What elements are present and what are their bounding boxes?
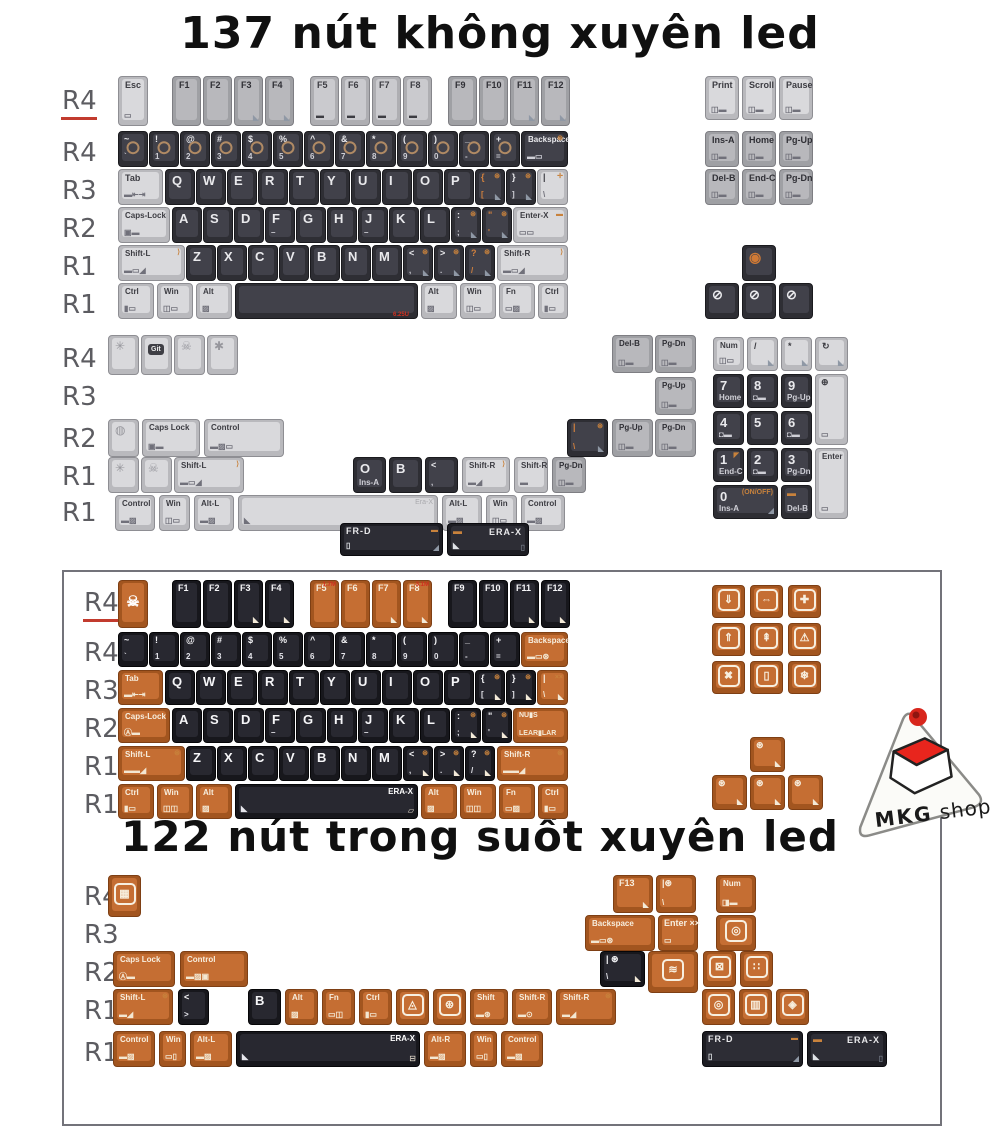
keycap-6: 6◘▬	[781, 411, 812, 445]
keycap-icon: 6.25U	[235, 283, 418, 319]
row-label: R1	[62, 252, 97, 282]
key-legend: >	[440, 249, 445, 258]
row-label: R4	[84, 588, 119, 618]
keycap-z: Z	[186, 245, 216, 281]
keycap-o: O	[413, 169, 443, 205]
keycap-glyph: ~`	[118, 632, 148, 667]
row-label: R4	[62, 138, 97, 168]
keycap-control: Control▬▨	[113, 1031, 155, 1067]
row-label: R4	[62, 344, 97, 374]
key-legend: }	[512, 173, 516, 182]
key-legend: O	[420, 174, 430, 187]
key-legend: Alt	[203, 288, 214, 296]
keycap-fn: Fn▭▨	[499, 784, 535, 819]
key-legend: Control	[120, 1036, 148, 1044]
key-legend: T	[296, 675, 304, 688]
key-legend: Esc	[125, 81, 141, 90]
key-legend: ◣	[813, 798, 819, 806]
key-legend: ◫▬	[618, 443, 634, 451]
key-legend: ?	[471, 249, 477, 258]
keycap-9: 9Pg-Up	[781, 374, 812, 408]
key-legend: ××	[555, 674, 563, 681]
key-legend: R	[265, 675, 274, 688]
key-legend: >	[440, 750, 445, 759]
key-legend: Caps-Lock	[125, 212, 166, 220]
key-legend: ◣	[454, 269, 460, 277]
keycap-fr-d: FR-D▯▬◢	[702, 1031, 803, 1067]
key-legend: ERA-X	[390, 1035, 415, 1043]
key-legend: ◣	[598, 445, 604, 453]
key-legend: Win	[493, 500, 508, 508]
keycap-f4: F4◣	[265, 580, 294, 628]
keycap-l: L	[420, 708, 450, 743]
key-legend: ◍	[115, 424, 125, 436]
red-size-mark: 1.7M	[323, 582, 336, 588]
key-legend: +	[496, 135, 501, 144]
key-legend: X	[224, 250, 233, 263]
keycap-u: U	[351, 670, 381, 705]
keycap-shift-r: Shift-R▬◢⟩	[462, 457, 510, 493]
key-legend: ◣	[485, 269, 491, 277]
key-legend: ▨	[427, 805, 435, 813]
key-legend: ▬▭◢	[503, 267, 525, 275]
key-legend: ▮▭	[124, 805, 136, 813]
key-legend: Ins-A	[712, 136, 735, 145]
keycap-glyph: ☠	[141, 457, 172, 493]
key-legend: ⟩	[560, 249, 563, 256]
keycap-e: E	[227, 169, 257, 205]
keycap-glyph: *◣	[781, 337, 812, 371]
key-legend: ▬▨	[121, 517, 137, 525]
key-legend: Shift-R	[521, 462, 547, 470]
keycap-a: A	[172, 708, 202, 743]
keycap-h: H	[327, 708, 357, 743]
key-legend: |	[543, 173, 546, 182]
keycap-backspace: Backspace▬▭⊛	[521, 632, 568, 667]
keycap-shift-r: Shift-R▬	[514, 457, 548, 493]
key-legend: Alt	[428, 288, 439, 296]
key-legend: 0	[434, 153, 438, 161]
key-legend: FR-D	[346, 527, 372, 536]
keycap-shift-l: Shift-L▬▭◢⟩	[118, 245, 185, 281]
key-legend: F7	[378, 584, 389, 593]
keycap-glyph: | ⊛\◣	[600, 951, 645, 987]
key-legend: F9	[454, 584, 465, 593]
key-legend: \	[573, 443, 575, 451]
key-legend: .	[440, 767, 442, 775]
key-legend: }	[512, 674, 516, 683]
keycap-glyph: ?/⊛◣	[465, 245, 495, 281]
key-legend: ◣	[643, 901, 649, 909]
keycap-glyph: ⇑	[712, 623, 745, 656]
keycap-win: Win▭▯	[470, 1031, 497, 1067]
key-legend: Q	[172, 174, 182, 187]
key-legend: <	[409, 249, 414, 258]
title-led-set: 122 nút trong suốt xuyên led	[40, 812, 920, 861]
key-legend: L	[427, 713, 435, 726]
key-legend: ^	[310, 636, 315, 645]
key-legend: |⊛	[662, 879, 672, 888]
key-legend: 2	[186, 153, 190, 161]
key-legend: H	[334, 212, 343, 225]
key-legend: ⊛	[484, 249, 490, 256]
key-legend: 9	[403, 653, 407, 661]
key-legend: ▦	[114, 883, 136, 905]
key-legend: 7	[720, 379, 727, 392]
key-legend: !	[155, 135, 158, 144]
key-legend: @	[186, 135, 195, 144]
key-legend: %	[279, 636, 287, 645]
key-legend: ◣	[775, 798, 781, 806]
key-legend: ◣	[485, 769, 491, 777]
keycap-glyph: ⊘	[742, 283, 776, 319]
key-legend: Caps-Lock	[125, 713, 166, 721]
key-legend: Backspace	[528, 136, 570, 144]
keycap-q: Q	[165, 670, 195, 705]
key-legend: |	[573, 423, 576, 432]
key-legend: #	[217, 636, 222, 645]
key-legend: 6	[310, 653, 314, 661]
keycap-alt: Alt▨	[421, 283, 457, 319]
key-legend: ⊛	[422, 750, 428, 757]
key-legend: ⊛	[453, 750, 459, 757]
key-legend: X	[224, 751, 233, 764]
key-legend: {	[481, 173, 485, 182]
keycap-f3: F3◣	[234, 580, 263, 628]
key-legend: Control	[122, 500, 150, 508]
key-legend: Tab	[125, 174, 140, 183]
keycap-alt-r: Alt-R▬▨	[424, 1031, 466, 1067]
keycap-f1: F1	[172, 580, 201, 628]
key-legend: Home	[749, 136, 774, 145]
key-legend: Win	[164, 288, 179, 296]
key-legend: ▬	[787, 489, 796, 498]
key-legend: V	[286, 250, 295, 263]
key-legend: ⊛	[470, 712, 476, 719]
keycap-glyph: >.⊛◣	[434, 245, 464, 281]
row-label: R1	[84, 790, 119, 820]
key-legend: I	[389, 174, 393, 187]
key-legend: F2	[209, 584, 220, 593]
key-legend: ▬▭	[527, 153, 543, 161]
key-legend: O	[360, 462, 370, 475]
key-legend: Control	[211, 424, 239, 432]
keycap-i: I	[382, 169, 412, 205]
key-legend: ▬	[347, 112, 355, 120]
row-label: R4	[62, 86, 97, 116]
key-legend: ◣	[253, 616, 259, 624]
key-legend: ▬▨▣	[186, 973, 209, 981]
key-legend: E	[234, 174, 243, 187]
key-legend: 6	[788, 416, 795, 429]
key-legend: –	[364, 229, 368, 237]
key-legend: Alt	[203, 789, 214, 797]
key-legend: |	[543, 674, 546, 683]
key-legend: *	[372, 135, 376, 144]
key-legend: Y	[327, 174, 336, 187]
keycap-shift-r: Shift-R▬⊙	[512, 989, 552, 1025]
keycap-glyph: ▬Del-B	[781, 485, 812, 519]
keycap-nu-s: NU▮SLEAR▮LAR	[513, 708, 568, 743]
key-legend: ◣	[802, 359, 808, 367]
key-legend: ▭▯	[476, 1053, 488, 1061]
keycap-a: A	[172, 207, 202, 243]
keycap-glyph: ∷	[740, 951, 773, 987]
key-legend: Pg-Dn	[662, 424, 686, 432]
keycap-glyph: +=	[490, 131, 520, 167]
key-legend: B	[396, 462, 405, 475]
keycap-glyph: "'⊛◣	[482, 207, 512, 243]
key-legend: D	[241, 713, 250, 726]
key-legend: Ctrl	[545, 789, 559, 797]
key-legend: P	[451, 675, 460, 688]
key-legend: F1	[178, 584, 189, 593]
keycap-glyph: ◣ERA-X⊟	[236, 1031, 420, 1067]
key-legend: 1	[155, 653, 159, 661]
key-legend: @	[186, 636, 195, 645]
keycap-f8: F8◣3.1M	[403, 580, 432, 628]
key-legend: Fn	[329, 994, 339, 1002]
key-legend: 0	[720, 490, 727, 503]
key-legend: ▬⊛	[476, 1011, 491, 1019]
keycap-glyph: ⊘	[705, 283, 739, 319]
row-label: R1	[84, 752, 119, 782]
key-legend: ▯	[521, 544, 525, 552]
keycap-fn: Fn▭◫	[322, 989, 355, 1025]
key-legend: ▮▭	[544, 305, 556, 313]
keycap-control: Control▬▨▭	[204, 419, 284, 457]
key-legend: ▬▨	[527, 517, 543, 525]
key-legend: \	[662, 899, 664, 907]
key-legend: ◣	[813, 1053, 819, 1061]
keycap-f: F–	[265, 207, 295, 243]
key-legend: 2	[754, 453, 761, 466]
keycap-x: X	[217, 245, 247, 281]
key-legend: `	[124, 653, 127, 661]
key-legend: ◣	[242, 1053, 248, 1061]
key-legend: ⇞	[756, 627, 778, 649]
key-legend: J	[365, 212, 372, 225]
key-legend: S	[210, 713, 219, 726]
key-legend: &	[341, 135, 348, 144]
key-legend: 0	[434, 653, 438, 661]
keycap-j: J–	[358, 207, 388, 243]
key-legend: Pg-Up	[662, 382, 686, 390]
keycap-1: 1End-C◤	[713, 448, 744, 482]
keycap-s: S	[203, 207, 233, 243]
key-legend: S	[210, 212, 219, 225]
keycap-j: J–	[358, 708, 388, 743]
key-legend: Caps Lock	[149, 424, 189, 432]
keycap-shift-r: Shift-R▬▭◢⟩	[497, 245, 568, 281]
key-legend: ◫▬	[785, 191, 801, 199]
key-legend: ▬	[431, 527, 438, 534]
key-legend: ▬	[813, 1035, 823, 1044]
key-legend: Alt-L	[449, 500, 467, 508]
key-legend: ⊛	[597, 423, 603, 430]
keycap-f4: F4◣	[265, 76, 294, 126]
key-legend: =	[496, 153, 501, 161]
keycap-shift-r: Shift-R▬▬◢⊛	[497, 746, 568, 781]
key-legend: End-C	[719, 468, 743, 476]
key-legend: ◣	[502, 731, 508, 739]
keycap-fr-d: FR-D▯▬◢	[340, 523, 443, 556]
keycap-glyph: ⊘	[779, 283, 813, 319]
key-legend: \	[606, 973, 608, 981]
key-legend: ◘▬	[787, 431, 800, 439]
key-legend: Shift-R	[469, 462, 495, 470]
row-label: R2	[62, 424, 97, 454]
key-legend: M	[379, 751, 390, 764]
key-legend: Control	[508, 1036, 536, 1044]
key-legend: ◣	[241, 805, 247, 813]
keycap-w: W	[196, 169, 226, 205]
key-legend: Shift-R	[519, 994, 545, 1002]
keycap-glyph: <>	[178, 989, 209, 1025]
key-legend: "	[488, 211, 492, 220]
key-legend: ▬	[453, 527, 463, 536]
key-legend: ◣	[502, 231, 508, 239]
key-legend: (	[403, 135, 406, 144]
key-legend: ⊛	[494, 173, 500, 180]
key-legend: (	[403, 636, 406, 645]
keycap-f9: F9	[448, 76, 477, 126]
keycap-glyph: _-	[459, 632, 489, 667]
key-legend: ▮▭	[365, 1011, 377, 1019]
key-legend: '	[488, 729, 490, 737]
key-legend: [	[481, 191, 484, 199]
key-legend: ◎	[708, 994, 730, 1016]
keycap-glyph: ~`	[118, 131, 148, 167]
keycap-7: 7Home	[713, 374, 744, 408]
keycap-glyph: !1	[149, 632, 179, 667]
keycap-home: Home◫▬	[742, 131, 776, 167]
row-label: R3	[84, 676, 119, 706]
row-label: R1	[62, 498, 97, 528]
key-legend: ▣▬	[124, 229, 140, 237]
keycap-glyph: :;⊛◣	[451, 708, 481, 743]
keycap-glyph: *8	[366, 131, 396, 167]
key-legend: ▬	[316, 112, 324, 120]
key-legend: Num	[720, 342, 738, 350]
key-legend: ⊛	[605, 993, 611, 1000]
keycap-win: Win◫◫	[460, 784, 496, 819]
key-legend: Win	[164, 789, 179, 797]
key-legend: ⚠	[794, 627, 816, 649]
keycap-glyph: $4	[242, 632, 272, 667]
key-legend: ⇓	[718, 589, 740, 611]
key-legend: F12	[548, 81, 564, 90]
key-legend: ◫▬	[748, 153, 764, 161]
keycap-s: S	[203, 708, 233, 743]
keycap-glyph: {[⊛◣	[475, 169, 505, 205]
keycap-glyph: ◣ERA-X▱	[235, 784, 418, 819]
key-legend: Win	[467, 789, 482, 797]
row-label: R3	[84, 920, 119, 950]
key-legend: ⊠	[709, 956, 731, 978]
key-legend: ◣	[495, 693, 501, 701]
keycap-glyph: ^6	[304, 131, 334, 167]
key-legend: ◣	[526, 193, 532, 201]
key-legend: )	[434, 636, 437, 645]
keycap-glyph: "'⊛◣	[482, 708, 512, 743]
key-legend: ◣	[558, 693, 564, 701]
key-legend: ◣	[775, 760, 781, 768]
key-legend: 7	[341, 653, 345, 661]
key-legend: /	[471, 767, 473, 775]
keycap-x: X	[217, 746, 247, 781]
keycap-caps-lock: Caps LockⒶ▬	[113, 951, 175, 987]
key-legend: V	[286, 751, 295, 764]
keycap-glyph: %5	[273, 131, 303, 167]
key-legend: 4	[248, 653, 252, 661]
keycap-m: M	[372, 746, 402, 781]
keycap-f10: F10	[479, 580, 508, 628]
keycap-ctrl: Ctrl▮▭	[359, 989, 392, 1025]
key-legend: ◎	[725, 920, 747, 942]
key-legend: F11	[517, 81, 532, 90]
key-legend: ▭▨	[505, 305, 520, 313]
keycap-glyph: ☠	[174, 335, 205, 375]
key-legend: ◣	[423, 269, 429, 277]
key-legend: ▭	[821, 505, 829, 513]
key-legend: F13	[619, 879, 635, 888]
key-legend: Alt-L	[201, 500, 219, 508]
key-legend: Shift-L	[181, 462, 206, 470]
keycap-glyph: <,	[425, 457, 458, 493]
key-legend: F7	[379, 81, 390, 90]
key-legend: –	[364, 729, 368, 737]
key-legend: =	[496, 653, 501, 661]
key-legend: ◣	[471, 231, 477, 239]
key-legend: –	[271, 229, 275, 237]
key-legend: :	[457, 712, 460, 721]
keycap-i: I	[382, 670, 412, 705]
keycap-glyph: <,⊛◣	[403, 746, 433, 781]
key-legend: ◣	[495, 193, 501, 201]
keycap-glyph: ❄	[788, 661, 821, 694]
key-legend: B	[255, 994, 264, 1007]
key-legend: FR-D	[708, 1035, 734, 1044]
key-legend: *	[372, 636, 376, 645]
key-legend: ▮▭	[124, 305, 136, 313]
key-legend: ▭▯	[165, 1053, 177, 1061]
keycap-esc: Esc▭	[118, 76, 148, 126]
key-legend: ◘▬	[753, 468, 766, 476]
keycap-f8: F8▬	[403, 76, 432, 126]
keycap-glyph: ▥	[739, 989, 772, 1025]
key-legend: $	[248, 135, 253, 144]
key-legend: >	[184, 1011, 189, 1019]
key-legend: 8	[372, 153, 376, 161]
title-non-led-set: 137 nút không xuyên led	[0, 8, 1000, 59]
key-legend: F11	[516, 584, 531, 593]
key-legend: 8	[372, 653, 376, 661]
key-legend: ⊘	[786, 288, 797, 301]
key-legend: ⇑	[718, 627, 740, 649]
keycap-glyph: $4	[242, 131, 272, 167]
key-legend: ☠	[181, 340, 192, 352]
key-legend: ◫▬	[711, 106, 727, 114]
key-legend: ▬▨	[507, 1053, 523, 1061]
key-legend: 9	[788, 379, 795, 392]
keycap-glyph: /◣	[747, 337, 778, 371]
keycap-q: Q	[165, 169, 195, 205]
key-legend: Enter ××	[664, 919, 700, 928]
key-legend: Z	[193, 751, 201, 764]
key-legend: /	[471, 267, 473, 275]
keycap-f6: F6	[341, 580, 370, 628]
